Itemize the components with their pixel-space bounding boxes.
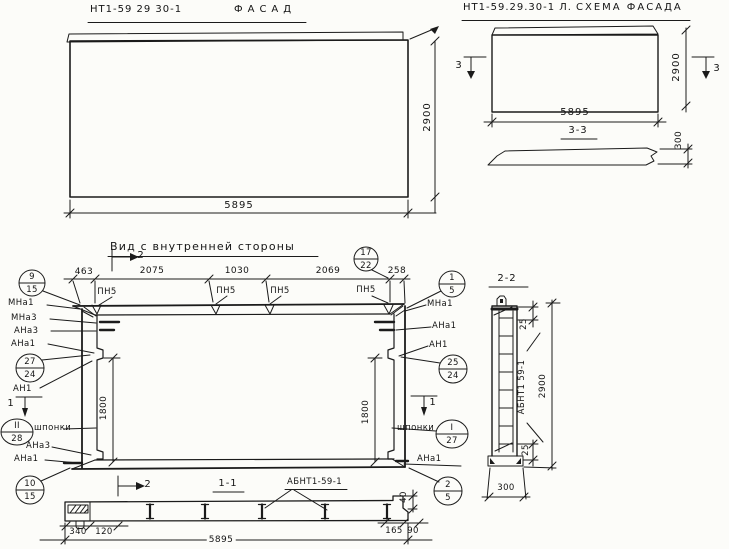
label-ana1-right-2: АНа1 (417, 454, 441, 464)
callout-II-top: II (14, 421, 20, 431)
facade-width-dim: 5895 (224, 201, 253, 211)
section-2-2-title: 2-2 (497, 274, 516, 284)
callout-I-bottom: 27 (446, 436, 458, 446)
callout-25-top: 25 (447, 358, 459, 368)
dim-90: 90 (407, 526, 419, 536)
callout-17-top: 17 (360, 248, 372, 258)
dim-2075: 2075 (140, 266, 165, 276)
dim-258: 258 (388, 266, 406, 276)
pn5-label-4: ПН5 (356, 285, 375, 295)
callout-2-top: 2 (445, 480, 451, 490)
dim-463: 463 (75, 267, 93, 277)
section2-marker-bottom: 2 (144, 480, 151, 490)
callout-9-bottom: 15 (26, 285, 38, 295)
callout-25-bottom: 24 (447, 371, 459, 381)
section2-marker-top: 2 (137, 251, 144, 261)
section1-marker-left: 1 (7, 399, 14, 409)
dim-25-top: 25 (519, 318, 529, 330)
facade-drawing (64, 23, 439, 219)
facade-title-code: НТ1-59 29 30-1 (90, 5, 182, 15)
panel-top-edge (73, 304, 404, 306)
section-1-1-title: 1-1 (218, 479, 237, 489)
callout-I-top: I (451, 423, 454, 433)
section3-arrow-left (467, 71, 475, 79)
dim-300-section: 300 (497, 483, 514, 493)
facade-height-dim: 2900 (423, 102, 433, 131)
label-mna1-right: МНа1 (427, 299, 453, 309)
section1-marker-right: 1 (429, 398, 436, 408)
callout-1-bottom: 5 (449, 286, 455, 296)
callout-27-bottom: 24 (24, 370, 36, 380)
label-ana1-right: АНа1 (432, 321, 456, 331)
label-shponki-right: шпонки (397, 423, 434, 433)
dim-1800-left: 1800 (99, 396, 109, 421)
label-an1-right: АН1 (429, 340, 448, 350)
dim-5895-bottom: 5895 (207, 535, 236, 545)
dim-120: 120 (95, 527, 112, 537)
dim-25-bottom: 25 (521, 444, 531, 456)
schema-height-dim: 2900 (672, 52, 682, 81)
anchor-marks (64, 322, 408, 463)
dim-2069: 2069 (316, 266, 341, 276)
callout-II-bottom: 28 (11, 434, 23, 444)
callout-10-top: 10 (24, 479, 36, 489)
schema-title-code: НТ1-59.29.30-1 Л. (463, 3, 572, 13)
label-mna1-left: МНа1 (8, 298, 34, 308)
label-ana1-left: АНа1 (11, 339, 35, 349)
label-ana3-left: АНа3 (14, 326, 38, 336)
label-shponki-left: шпонки (34, 423, 71, 433)
facade-corner-arrow (430, 26, 439, 34)
facade-title: ФАСАД (234, 5, 296, 15)
pn5-label-3: ПН5 (270, 286, 289, 296)
dim-165: 165 (385, 526, 402, 536)
schema-thickness-dim: 300 (674, 131, 684, 149)
section1-arrow-left (22, 408, 28, 417)
label-mna3-left: МНа3 (11, 313, 37, 323)
rebar-sections (150, 505, 387, 519)
section-3-3-title: 3-3 (568, 126, 587, 136)
dim-1800-right: 1800 (361, 400, 371, 425)
blueprint-page: НТ1-59 29 30-1 ФАСАД НТ1-59.29.30-1 Л. С… (0, 0, 729, 549)
label-ana3-left-2: АНа3 (26, 441, 50, 451)
drawing-lines (0, 0, 729, 549)
schema-section-profile (488, 148, 657, 165)
schema-width-dim: 5895 (560, 108, 589, 118)
schema-title: СХЕМА ФАСАДА (576, 3, 683, 13)
pn5-label-1: ПН5 (97, 287, 116, 297)
ladder-rungs (499, 318, 513, 444)
panel-bottom-edge (72, 467, 405, 469)
section1-arrow-right (421, 407, 427, 416)
schema-top-ledge (492, 26, 658, 35)
dim-40: 40 (399, 491, 409, 503)
label-an1-left: АН1 (13, 384, 32, 394)
facade-panel-outline (70, 40, 408, 197)
section3-arrow-right (702, 71, 710, 79)
label-ana1-left-2: АНа1 (14, 454, 38, 464)
section3-marker-right: 3 (713, 64, 720, 74)
callout-2-bottom: 5 (445, 493, 451, 503)
rebar-label-2-2: АБНТ1 59-1 (517, 360, 527, 415)
dim-1030: 1030 (225, 266, 250, 276)
callout-27-top: 27 (24, 357, 36, 367)
section3-marker-left: 3 (455, 61, 462, 71)
callout-10-bottom: 15 (24, 492, 36, 502)
callout-1-top: 1 (449, 273, 455, 283)
member-foot (488, 456, 523, 466)
pn5-label-2: ПН5 (216, 286, 235, 296)
rebar-label-1-1: АБНТ1-59-1 (287, 477, 342, 487)
schema-panel-outline (492, 35, 658, 112)
strip-outline (65, 496, 408, 521)
hatched-insert (68, 505, 88, 513)
callout-9-top: 9 (29, 272, 35, 282)
dim-2900-section: 2900 (538, 374, 548, 399)
callout-17-bottom: 22 (360, 261, 372, 271)
dim-340: 340 (69, 527, 86, 537)
